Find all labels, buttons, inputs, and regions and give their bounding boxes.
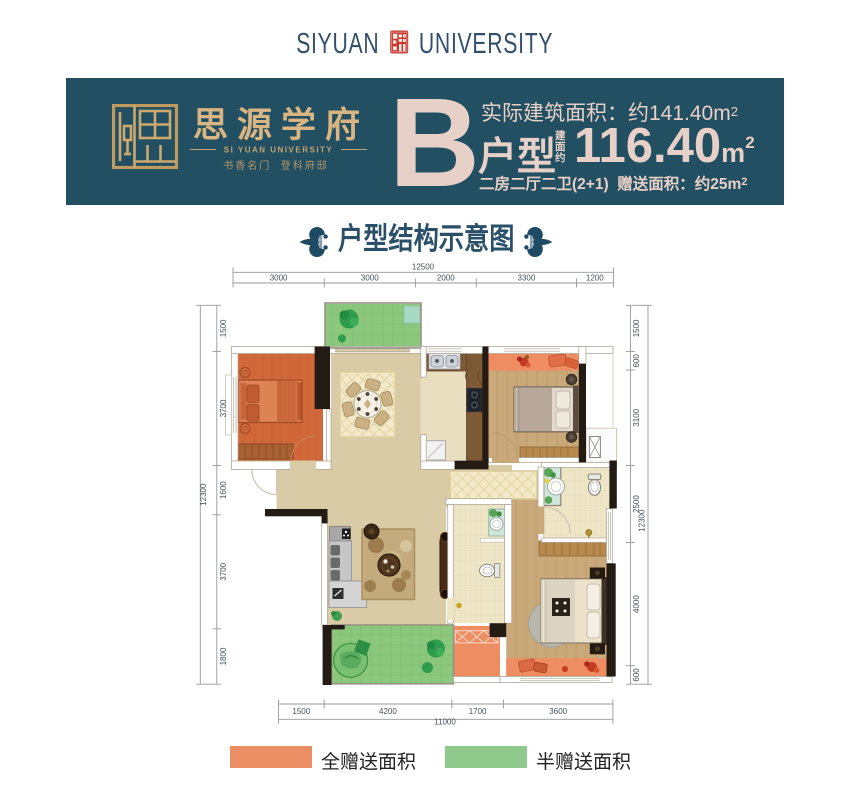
svg-text:600: 600 (632, 668, 641, 682)
svg-text:600: 600 (632, 354, 641, 368)
svg-text:12300: 12300 (638, 509, 647, 532)
svg-text:4000: 4000 (632, 595, 641, 613)
svg-text:1500: 1500 (632, 319, 641, 337)
svg-text:3300: 3300 (518, 274, 536, 283)
svg-text:1800: 1800 (219, 647, 228, 665)
svg-text:3000: 3000 (270, 274, 288, 283)
svg-text:1700: 1700 (469, 707, 487, 716)
svg-text:3700: 3700 (219, 562, 228, 580)
svg-text:1500: 1500 (292, 707, 310, 716)
svg-text:1200: 1200 (586, 274, 604, 283)
svg-text:3100: 3100 (632, 408, 641, 426)
svg-text:3600: 3600 (549, 707, 567, 716)
svg-text:3700: 3700 (219, 399, 228, 417)
svg-text:2000: 2000 (437, 274, 455, 283)
svg-text:12300: 12300 (199, 483, 208, 506)
svg-text:4200: 4200 (379, 707, 397, 716)
svg-text:11000: 11000 (434, 718, 456, 727)
svg-text:1500: 1500 (219, 319, 228, 337)
svg-text:12500: 12500 (412, 263, 435, 272)
svg-text:1600: 1600 (219, 481, 228, 499)
svg-text:3000: 3000 (361, 274, 379, 283)
